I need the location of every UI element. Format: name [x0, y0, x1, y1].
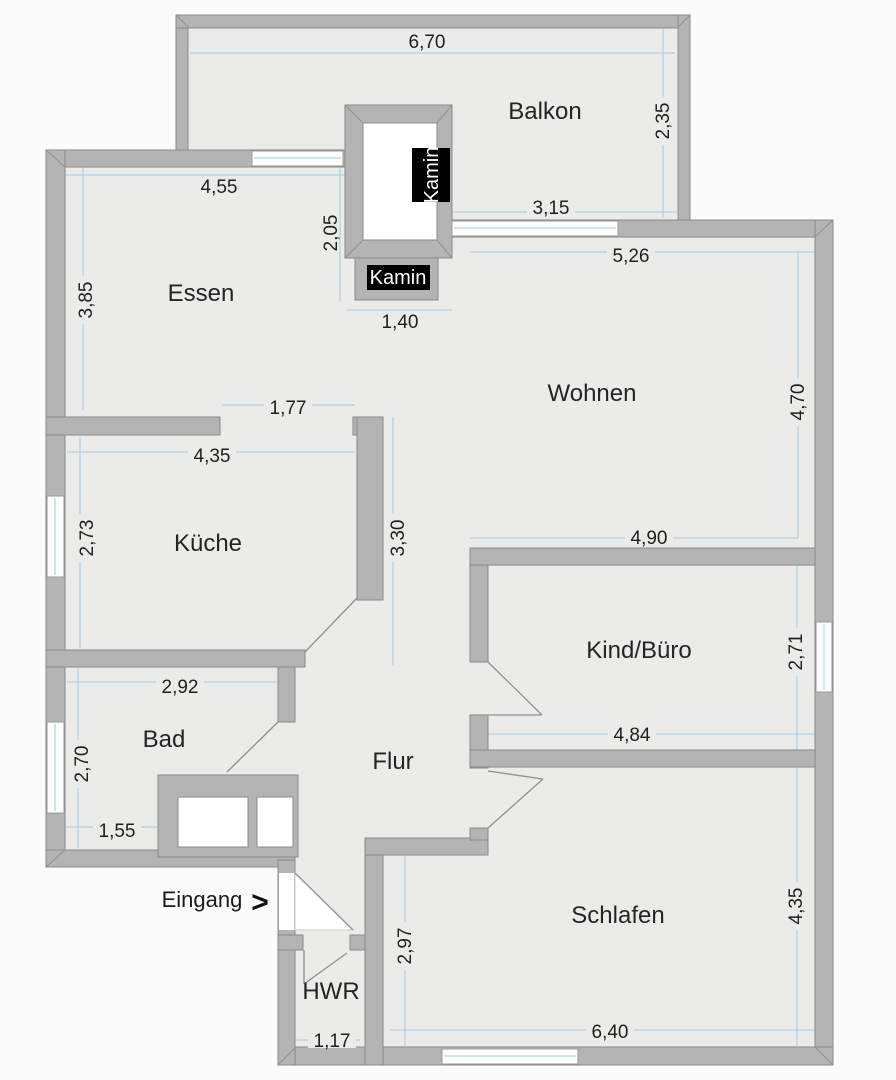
- shaft-opening-right: [257, 797, 293, 847]
- shaft-opening-left: [178, 797, 248, 847]
- dimension-label-kamin-width: 1,40: [382, 312, 419, 333]
- room-label-bad: Bad: [143, 726, 186, 753]
- dimension-label-flur-wall: 3,30: [388, 520, 409, 557]
- dimension-label-kueche-left: 2,73: [77, 520, 98, 557]
- room-label-balkon: Balkon: [508, 98, 581, 125]
- dimension-label-wohnen-bottom: 4,90: [631, 528, 668, 549]
- wall-hwr-top-left: [278, 935, 303, 950]
- wall-essen-kueche: [46, 417, 220, 435]
- dimension-label-essen-top: 4,55: [201, 177, 238, 198]
- dimension-label-wohnen-top: 5,26: [613, 246, 650, 267]
- dimension-label-bad-top: 2,92: [162, 677, 199, 698]
- floor-plan-canvas: Kamin Kamin: [0, 0, 896, 1080]
- dimension-label-balkon-top: 6,70: [409, 32, 446, 53]
- dimension-label-kind-right: 2,71: [786, 634, 807, 671]
- dimension-label-balkon-right: 2,35: [653, 103, 674, 140]
- dimension-label-kind-bottom: 4,84: [614, 725, 651, 746]
- wall-flur-bottom: [365, 838, 488, 855]
- dimension-label-balkon-inner: 3,15: [533, 198, 570, 219]
- wall-kueche-right: [357, 417, 383, 600]
- wall-schlafen-door-stub: [470, 828, 488, 840]
- dimension-label-schlafen-right: 4,35: [786, 888, 807, 925]
- entrance-label: Eingang: [162, 887, 243, 912]
- wall-balkon-right: [678, 15, 690, 231]
- wall-schlafen-left: [365, 838, 383, 1065]
- dimension-label-wohnen-right: 4,70: [788, 384, 809, 421]
- wall-bad-right: [278, 667, 295, 722]
- room-label-kind-buero: Kind/Büro: [586, 637, 691, 664]
- room-label-kueche: Küche: [174, 530, 242, 557]
- wall-kind-bottom: [470, 750, 815, 767]
- wall-balkon-top: [176, 15, 690, 28]
- floor-plan: Kamin Kamin: [0, 0, 896, 1080]
- entrance-arrow-icon: >: [251, 886, 269, 919]
- kamin-label-horizontal: Kamin: [370, 267, 427, 289]
- wall-kueche-bottom: [46, 650, 305, 667]
- room-label-flur: Flur: [372, 748, 413, 775]
- dimension-label-kueche-top: 4,35: [194, 446, 231, 467]
- dimension-label-schlafen-left: 2,97: [395, 928, 416, 965]
- dimension-label-essen-opening: 1,77: [270, 398, 307, 419]
- room-label-schlafen: Schlafen: [571, 902, 664, 929]
- room-label-wohnen: Wohnen: [548, 380, 637, 407]
- dimension-label-kamin-height: 2,05: [321, 215, 342, 252]
- dimension-label-hwr-bottom: 1,17: [314, 1031, 351, 1052]
- kamin-shaft: Kamin Kamin: [345, 105, 452, 300]
- dimension-label-essen-left: 3,85: [76, 282, 97, 319]
- room-label-essen: Essen: [168, 280, 235, 307]
- dimension-label-bad-left: 2,70: [72, 746, 93, 783]
- door-opening-eingang: [279, 873, 294, 930]
- room-label-hwr: HWR: [302, 978, 359, 1005]
- wall-balkon-left: [176, 15, 188, 157]
- kamin-label-vertical: Kamin: [421, 147, 443, 204]
- wall-wohnen-bottom: [470, 548, 815, 565]
- dimension-label-schlafen-bottom: 6,40: [592, 1022, 629, 1043]
- dimension-label-bad-bottom: 1,55: [99, 821, 136, 842]
